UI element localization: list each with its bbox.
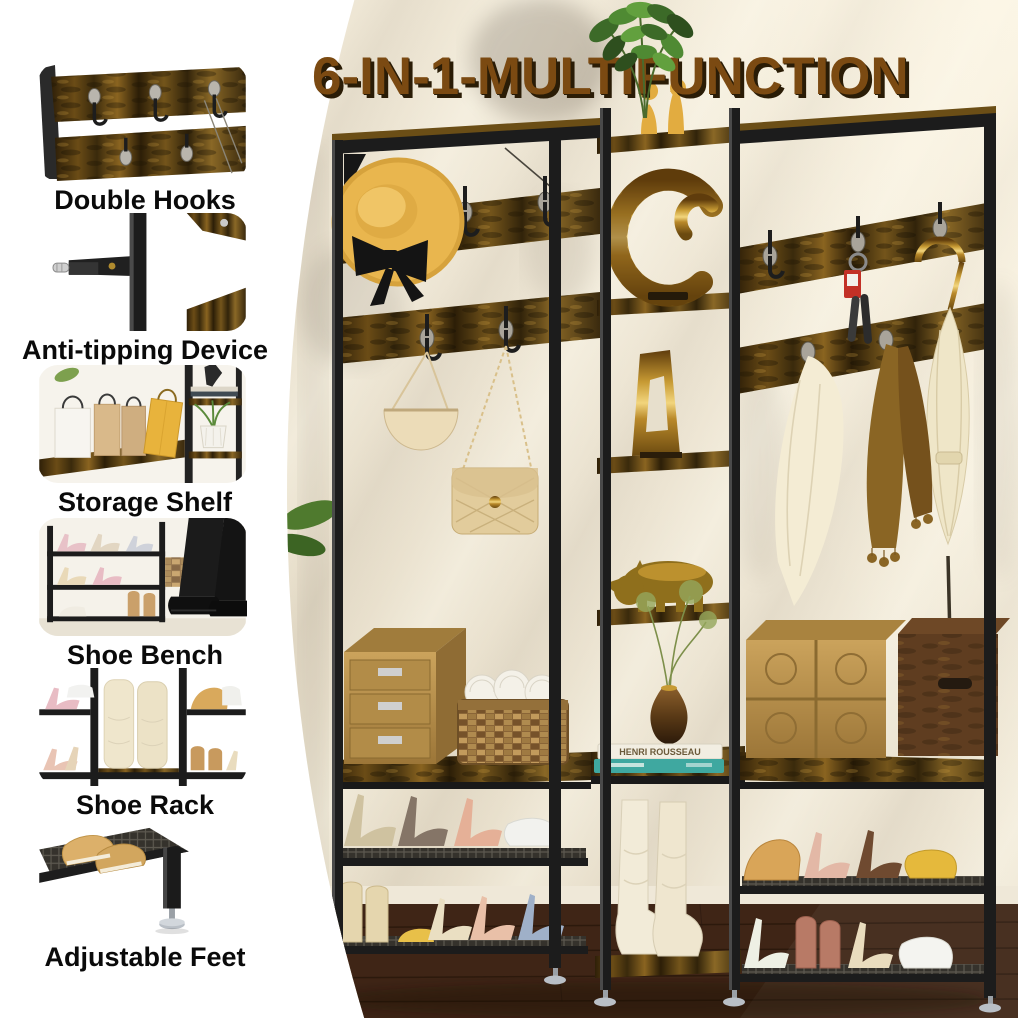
four-cube-drawer xyxy=(746,620,906,758)
shoe-bench-thumbnail xyxy=(38,518,247,636)
feature-label: Shoe Rack xyxy=(0,790,290,821)
anti-tipping-thumbnail xyxy=(38,213,247,331)
quilted-bag xyxy=(452,346,538,534)
three-drawer-box xyxy=(344,628,466,764)
white-tall-boots xyxy=(616,800,702,956)
gold-horn-sculpture xyxy=(616,180,712,300)
feature-label: Anti-tipping Device xyxy=(0,335,290,366)
product-image: HENRI ROUSSEAU xyxy=(0,0,1018,1018)
center-shelf-tower: HENRI ROUSSEAU xyxy=(591,79,745,978)
books-stack: HENRI ROUSSEAU xyxy=(594,744,724,773)
adjustable-feet-thumbnail xyxy=(38,820,247,938)
feature-label: Storage Shelf xyxy=(0,487,290,518)
shoes-right-row1 xyxy=(744,830,956,880)
feature-sidebar: Double Hooks xyxy=(0,0,290,1018)
feature-label: Double Hooks xyxy=(0,185,290,216)
shoe-rack-thumbnail xyxy=(38,668,247,786)
gold-abstract-sculpture xyxy=(632,350,682,458)
hanging-towel xyxy=(775,356,843,606)
storage-shelf-thumbnail xyxy=(38,365,247,483)
feature-label: Shoe Bench xyxy=(0,640,290,671)
shoes-left-row1 xyxy=(344,794,557,846)
book-spine-text: HENRI ROUSSEAU xyxy=(619,747,701,757)
screw-icon xyxy=(53,263,69,272)
plant xyxy=(556,0,731,118)
halfmoon-bag xyxy=(384,352,458,450)
feature-label: Adjustable Feet xyxy=(0,942,290,973)
hanging-scarf xyxy=(867,344,933,567)
double-hooks-thumbnail xyxy=(38,63,247,181)
